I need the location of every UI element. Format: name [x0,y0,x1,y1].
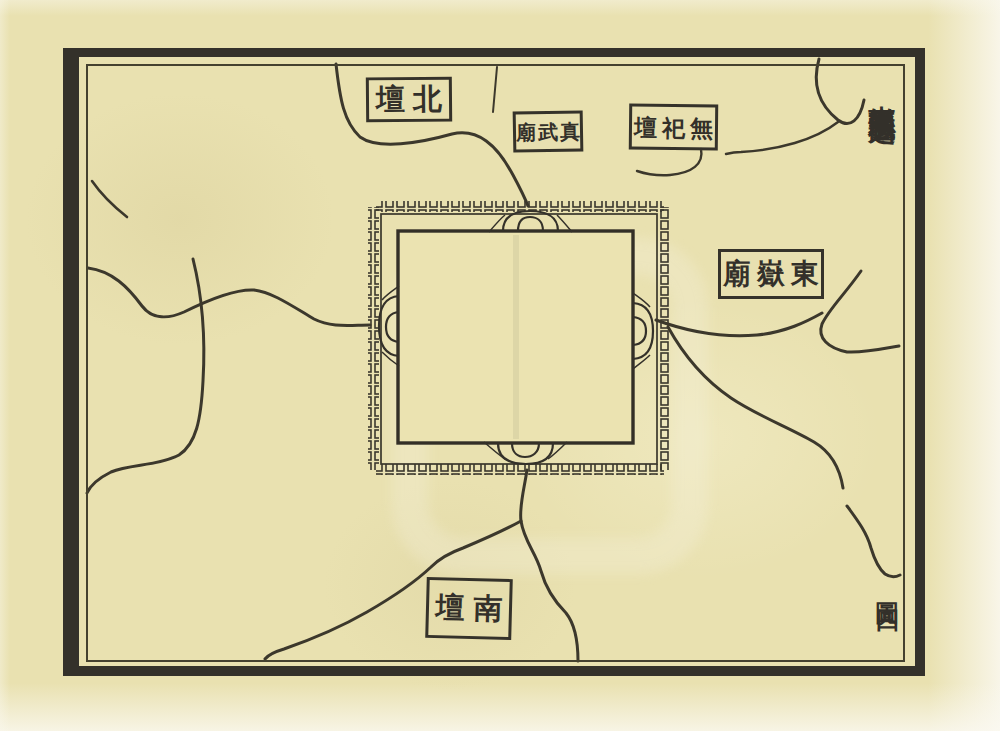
label-north-altar: 壇北 [366,77,452,123]
figure-number: 圖四 [871,584,903,598]
gazetteer-map-page: 壇北 廟武真 壇祀無 廟嶽東 壇南 南樂縣疆域之圖 圖四 [0,0,1000,731]
label-no-sacrifice-altar: 壇祀無 [629,104,718,151]
label-zhenwu-temple: 廟武真 [513,110,584,152]
map-border-inner [86,64,905,662]
label-south-altar: 壇南 [425,577,513,640]
map-title: 南樂縣疆域之圖 [864,84,900,98]
label-dongyue-temple: 廟嶽東 [718,249,824,299]
